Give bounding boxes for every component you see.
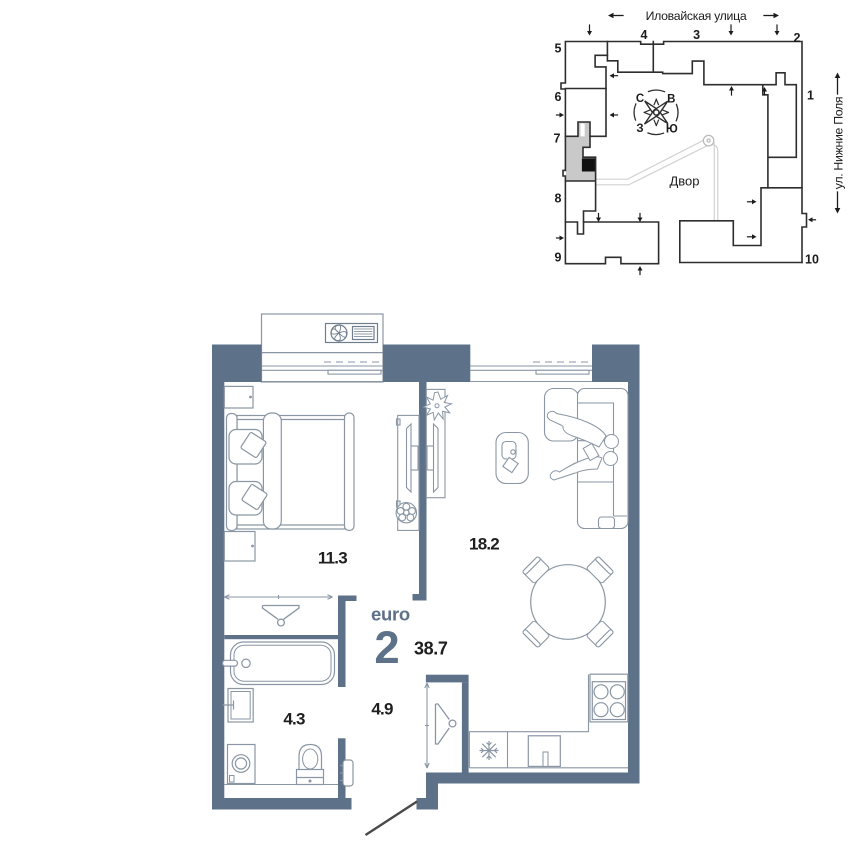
svg-text:З: З — [636, 123, 643, 135]
svg-text:10: 10 — [805, 253, 819, 267]
svg-text:3: 3 — [693, 28, 700, 42]
svg-text:Двор: Двор — [669, 174, 699, 189]
svg-text:1: 1 — [807, 89, 814, 103]
svg-text:4: 4 — [641, 28, 648, 42]
svg-text:ул. Нижние Поля: ул. Нижние Поля — [832, 97, 846, 190]
svg-text:С: С — [636, 93, 644, 105]
svg-text:18.2: 18.2 — [469, 535, 499, 554]
svg-text:6: 6 — [555, 90, 562, 104]
svg-text:8: 8 — [555, 191, 562, 205]
svg-text:4.9: 4.9 — [371, 700, 393, 719]
svg-text:Иловайская улица: Иловайская улица — [646, 9, 747, 23]
svg-text:11.3: 11.3 — [318, 549, 347, 568]
svg-text:4.3: 4.3 — [283, 710, 305, 729]
svg-text:7: 7 — [554, 132, 561, 146]
svg-text:2: 2 — [794, 31, 801, 45]
svg-text:38.7: 38.7 — [414, 639, 448, 659]
svg-text:В: В — [667, 93, 675, 105]
svg-text:9: 9 — [555, 251, 562, 265]
svg-text:2: 2 — [374, 622, 399, 673]
svg-text:Ю: Ю — [666, 124, 678, 136]
svg-text:5: 5 — [555, 42, 562, 56]
